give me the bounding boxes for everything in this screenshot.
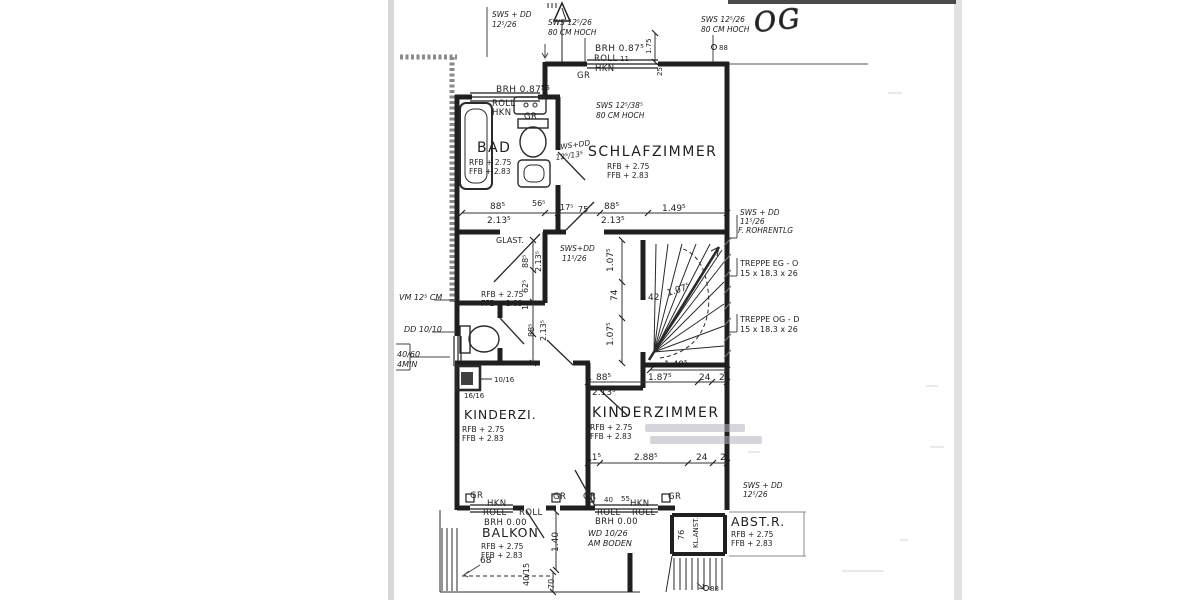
neighbor-wall-hatched	[400, 57, 457, 303]
dim-top-1: 2.13⁵	[487, 216, 511, 226]
band-wd-1: WD 10/26	[588, 529, 628, 538]
schlaf-window-175: 1.75	[645, 38, 653, 54]
band-roll2: ROLL	[519, 508, 543, 518]
abstr-rfb: RFB + 2.75	[731, 530, 774, 539]
dim-top-6: 2.13⁵	[601, 216, 625, 226]
bidet-icon	[518, 160, 550, 187]
toilet-icon	[520, 127, 546, 157]
rm-treppe2-1: TREPPE OG - D	[739, 315, 799, 324]
dim-mid-2: 2.13⁵	[592, 388, 616, 398]
washbasin-tap	[524, 103, 528, 107]
door-kinderzi-leaf	[547, 340, 573, 365]
room-balkon: BALKON	[482, 525, 539, 540]
schlaf-window-brh: BRH 0.87⁵	[595, 44, 644, 54]
rm-sws-1: SWS + DD	[740, 208, 780, 217]
dim-balkon-68: 68	[480, 556, 492, 566]
dim-vright-0: 1.07⁵	[606, 248, 616, 272]
phi-top-value: 88	[719, 44, 728, 52]
room-kinderzimmer: KINDERZIMMER	[592, 405, 720, 421]
schlafzimmer-ffb: FFB + 2.83	[607, 171, 649, 180]
schlaf-win-note-1: SWS 12⁵/38⁵	[596, 101, 643, 110]
rm-sws-4: SWS + DD	[743, 481, 783, 490]
note-sws-topleft-1: SWS + DD	[492, 10, 532, 19]
note-window-b-2: 80 CM HOCH	[701, 25, 750, 34]
scanned-floor-plan-page: SWS + DD 12⁵/26 SWS 12⁵/26 80 CM HOCH SW…	[0, 0, 1200, 600]
lm-vent-2: 4MIN	[397, 360, 417, 369]
dim-bottom-0: 11⁵	[586, 453, 601, 463]
shaft-16-16: 16/16	[464, 392, 485, 400]
note-window-a-1: SWS 12⁵/26	[548, 18, 592, 27]
dim-top-5: 88⁵	[604, 202, 619, 212]
band-55: 55	[621, 495, 630, 503]
rm-treppe1-2: 15 x 18.3 x 26	[740, 269, 798, 278]
schlaf-window-roll: ROLL	[594, 54, 618, 64]
bad-gr: GR	[524, 112, 537, 122]
wc-toilet-icon	[469, 326, 499, 352]
dim-vright-2: 1.07⁵	[606, 322, 616, 346]
dim-balkon-70: 70	[547, 579, 556, 589]
room-kinderzi: KINDERZI.	[464, 407, 537, 422]
rm-sws-3: F. ROHRENTLG	[738, 226, 793, 235]
band-wd-2: AM BODEN	[587, 539, 632, 548]
flur-ffb: FFB + 2.83	[481, 299, 523, 308]
shaft-10-16: 10/16	[494, 376, 515, 384]
washbasin-tap2	[533, 103, 537, 107]
dim-bottom-2: 24	[696, 453, 708, 463]
dim-bottom-1: 2.88⁵	[634, 453, 658, 463]
leader-lines	[396, 7, 737, 589]
dim-vleft-2: 62⁵	[521, 280, 530, 293]
band-gr1: GR	[470, 491, 483, 501]
lm-vm: VM 12⁵ CM	[399, 293, 442, 302]
dim-vleft-0: 88⁵	[521, 255, 530, 268]
schlafzimmer-rfb: RFB + 2.75	[607, 162, 650, 171]
room-abstr: ABST.R.	[731, 514, 785, 529]
abstr-ffb: FFB + 2.83	[731, 539, 773, 548]
phi-circle-top	[712, 45, 717, 50]
band-gr3: GR	[583, 492, 596, 502]
dim-mid-5: 2	[719, 373, 725, 383]
dim-vright-1: 74	[610, 289, 620, 301]
bad-rfb: RFB + 2.75	[469, 158, 512, 167]
room-schlafzimmer: SCHLAFZIMMER	[588, 144, 717, 160]
dim-mid-1: 88⁵	[596, 373, 611, 383]
dim-balkon-140: 1.40	[551, 532, 561, 552]
lm-vent-1: 40/60	[397, 350, 420, 359]
dim-top-7: 1.49⁵	[662, 204, 686, 214]
note-window-a-2: 80 CM HOCH	[548, 28, 597, 37]
dim-vleft-1: 2.13⁵	[534, 251, 543, 272]
dim-top-3: 17⁵	[560, 203, 573, 212]
bad-window-brh: BRH 0.87⁵	[496, 85, 545, 95]
balkon-rfb: RFB + 2.75	[481, 542, 524, 551]
window-symbols	[454, 60, 670, 512]
bidet-inner	[524, 165, 544, 182]
scan-edge-right	[954, 0, 962, 600]
watermark-stamp	[645, 424, 762, 444]
scan-edge-left	[388, 0, 394, 600]
dim-top-2: 56⁵	[532, 199, 545, 208]
shaft-fill	[461, 372, 473, 385]
bad-ffb: FFB + 2.83	[469, 167, 511, 176]
schlaf-window-11: 11	[620, 55, 629, 63]
flur-diag-1: SWS+DD	[560, 244, 595, 253]
wc-fixtures	[456, 326, 499, 390]
rm-treppe1-1: TREPPE EG - O	[739, 259, 798, 268]
kinderzimmer-rfb: RFB + 2.75	[590, 423, 633, 432]
klanst-label: KL.ANST.	[692, 517, 700, 548]
flur-glast: GLAST.	[496, 236, 524, 245]
rm-treppe2-2: 15 x 18.3 x 26	[740, 325, 798, 334]
floor-mark-og: OG	[752, 3, 803, 39]
dim-bottom-3: 2	[720, 453, 726, 463]
dim-vleft-3: 15	[521, 300, 530, 310]
band-roll1: ROLL	[483, 508, 507, 518]
stair-run	[649, 244, 724, 360]
dim-top-4: 75	[578, 205, 588, 214]
dim-vleft-5: 2.13⁵	[539, 320, 548, 341]
schlaf-win-note-2: 80 CM HOCH	[596, 111, 645, 120]
room-bad: BAD	[477, 140, 511, 156]
dim-mid-0: 1.49⁵	[664, 360, 688, 370]
band-gr2: GR	[553, 492, 566, 502]
schlaf-window-25: 25	[656, 67, 664, 76]
kinderzi-rfb: RFB + 2.75	[462, 425, 505, 434]
bad-window-55: 55	[541, 84, 550, 92]
flur-diag-2: 11⁵/26	[562, 254, 587, 263]
note-window-b-1: SWS 12⁵/26	[701, 15, 745, 24]
rm-sws-2: 11⁵/26	[740, 217, 765, 226]
dim-balkon-4015: 40/15	[522, 563, 531, 586]
band-40: 40	[604, 496, 613, 504]
dim-mid-4: 24	[699, 373, 711, 383]
flur-rfb: RFB + 2.75	[481, 290, 524, 299]
rm-sws-5: 12⁵/26	[743, 490, 768, 499]
bad-window-hkn: HKN	[492, 108, 512, 118]
dim-vleft-4: 88⁵	[527, 324, 536, 337]
band-gr4: GR	[668, 492, 681, 502]
lm-dd: DD 10/10	[404, 325, 442, 334]
door-wc-leaf	[500, 318, 524, 344]
dim-top-0: 88⁵	[490, 202, 505, 212]
phi-bottom-value: 88	[710, 585, 719, 593]
dim-mid-3: 1.87⁵	[648, 373, 672, 383]
note-sws-topleft-2: 12⁵/26	[492, 20, 517, 29]
floor-plan-svg: SWS + DD 12⁵/26 SWS 12⁵/26 80 CM HOCH SW…	[0, 0, 1200, 600]
schlaf-window-gr: GR	[577, 71, 590, 81]
kinderzimmer-ffb: FFB + 2.83	[590, 432, 632, 441]
kinderzi-ffb: FFB + 2.83	[462, 434, 504, 443]
band-brh2: BRH 0.00	[595, 517, 638, 527]
klanst-76: 76	[677, 530, 686, 540]
scan-edge-top	[728, 0, 956, 4]
schlaf-window-hkn: HKN	[595, 64, 615, 74]
balcony-railing	[442, 528, 457, 591]
stair-dim-42: 42	[648, 293, 659, 303]
